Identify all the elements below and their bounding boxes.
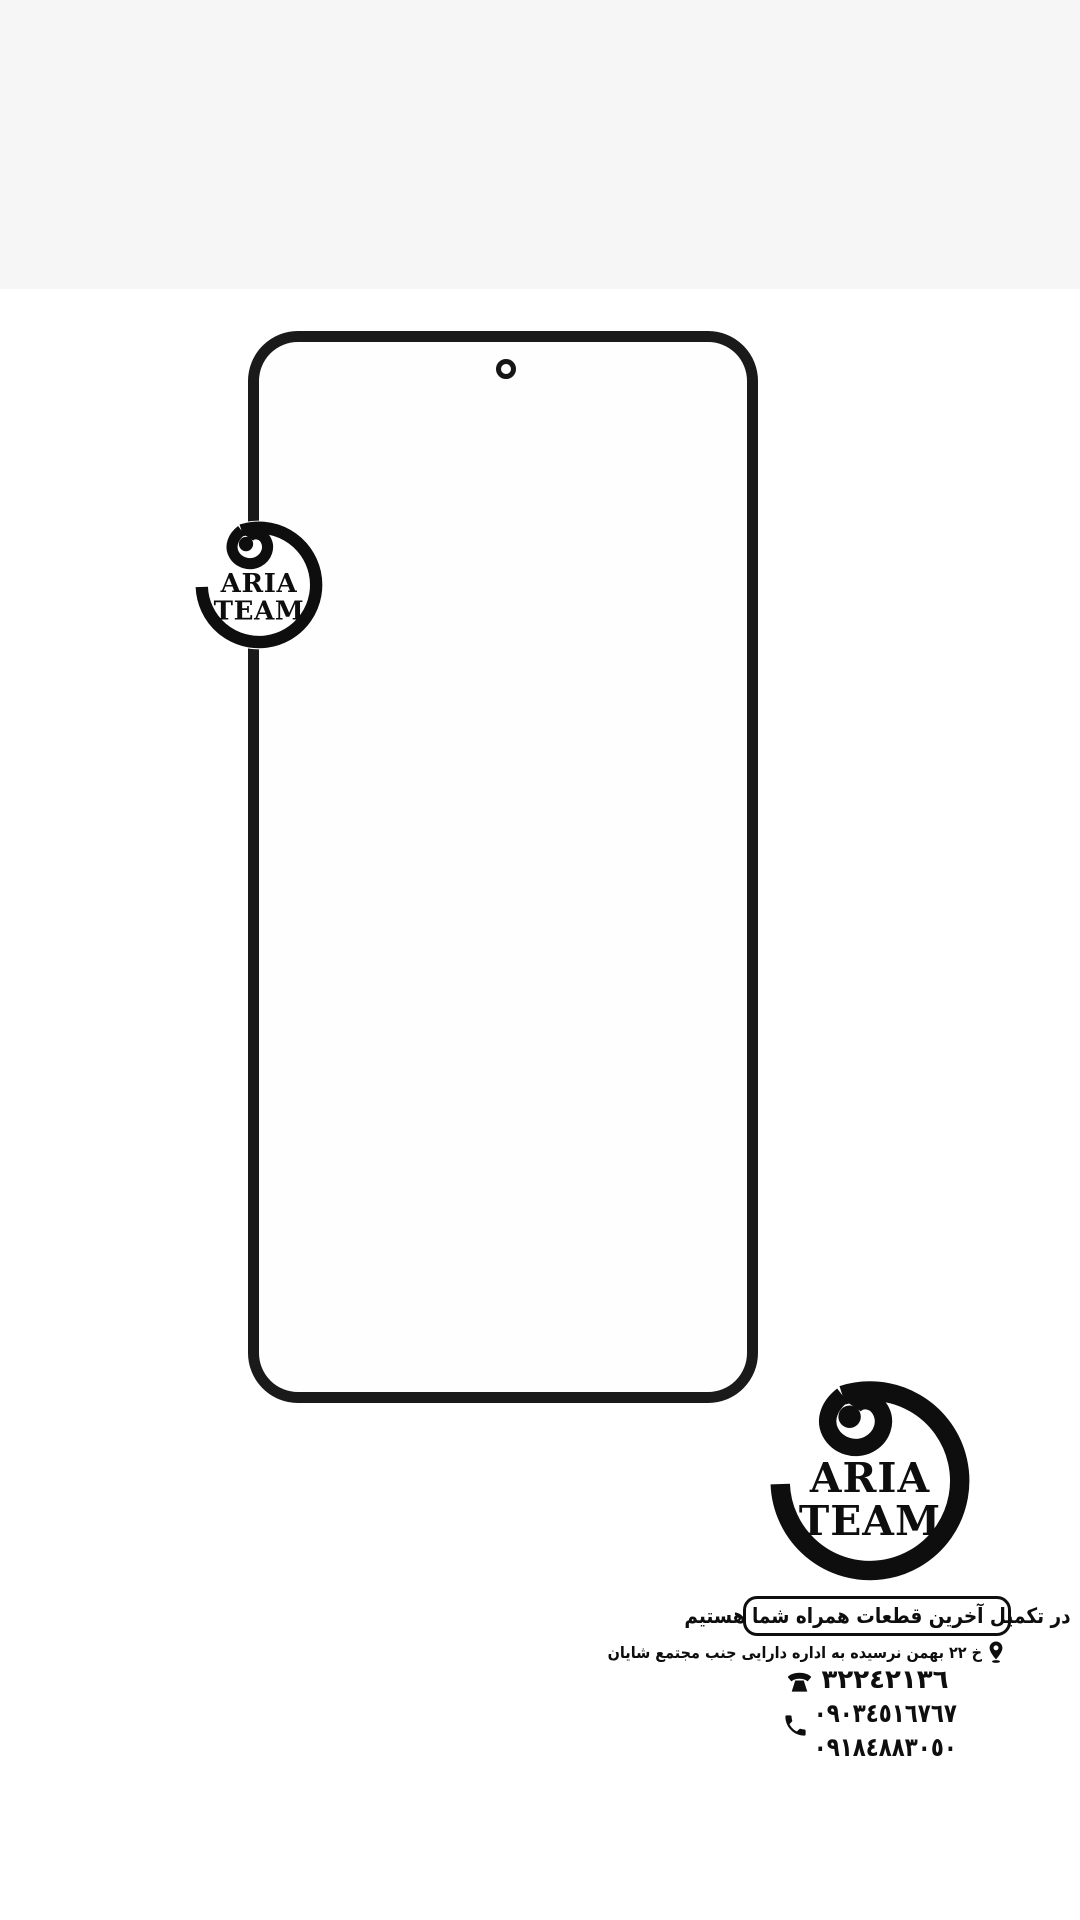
spiral-logo-icon: ARIA TEAM bbox=[768, 1379, 972, 1583]
phone-front-glass bbox=[248, 331, 758, 1403]
logo-text-aria: ARIA bbox=[809, 1454, 931, 1502]
slogan-banner: در تکمیل آخرین قطعات همراه شما هستیم bbox=[743, 1596, 1011, 1636]
slogan-text: در تکمیل آخرین قطعات همراه شما هستیم bbox=[684, 1604, 1070, 1628]
top-background-band bbox=[0, 0, 1080, 289]
punch-hole-camera bbox=[496, 359, 516, 379]
fax-number: ٣٢٢٤٢١٣٦ bbox=[770, 1664, 1000, 1696]
logo-text-aria: ARIA bbox=[220, 569, 298, 599]
spiral-logo-icon: ARIA TEAM bbox=[194, 520, 324, 650]
address-text: خ ٢٢ بهمن نرسیده به اداره دارایی جنب مجت… bbox=[608, 1643, 982, 1662]
logo-text-team: TEAM bbox=[799, 1497, 941, 1545]
product-photo-canvas: ARIA TEAM ARIA TEAM در تکمیل آخرین قطعات… bbox=[0, 0, 1080, 1920]
mobile-number-2: ٠٩١٨٤٨٨٣٠٥٠ bbox=[770, 1732, 1000, 1764]
contact-numbers: ٣٢٢٤٢١٣٦ ٠٩٠٣٤٥١٦٧٦٧ ٠٩١٨٤٨٨٣٠٥٠ bbox=[770, 1662, 1000, 1772]
mobile-number-1: ٠٩٠٣٤٥١٦٧٦٧ bbox=[770, 1698, 1000, 1730]
aria-team-logo-large: ARIA TEAM bbox=[768, 1379, 972, 1583]
aria-team-watermark-small: ARIA TEAM bbox=[194, 520, 324, 650]
logo-text-team: TEAM bbox=[214, 596, 305, 626]
